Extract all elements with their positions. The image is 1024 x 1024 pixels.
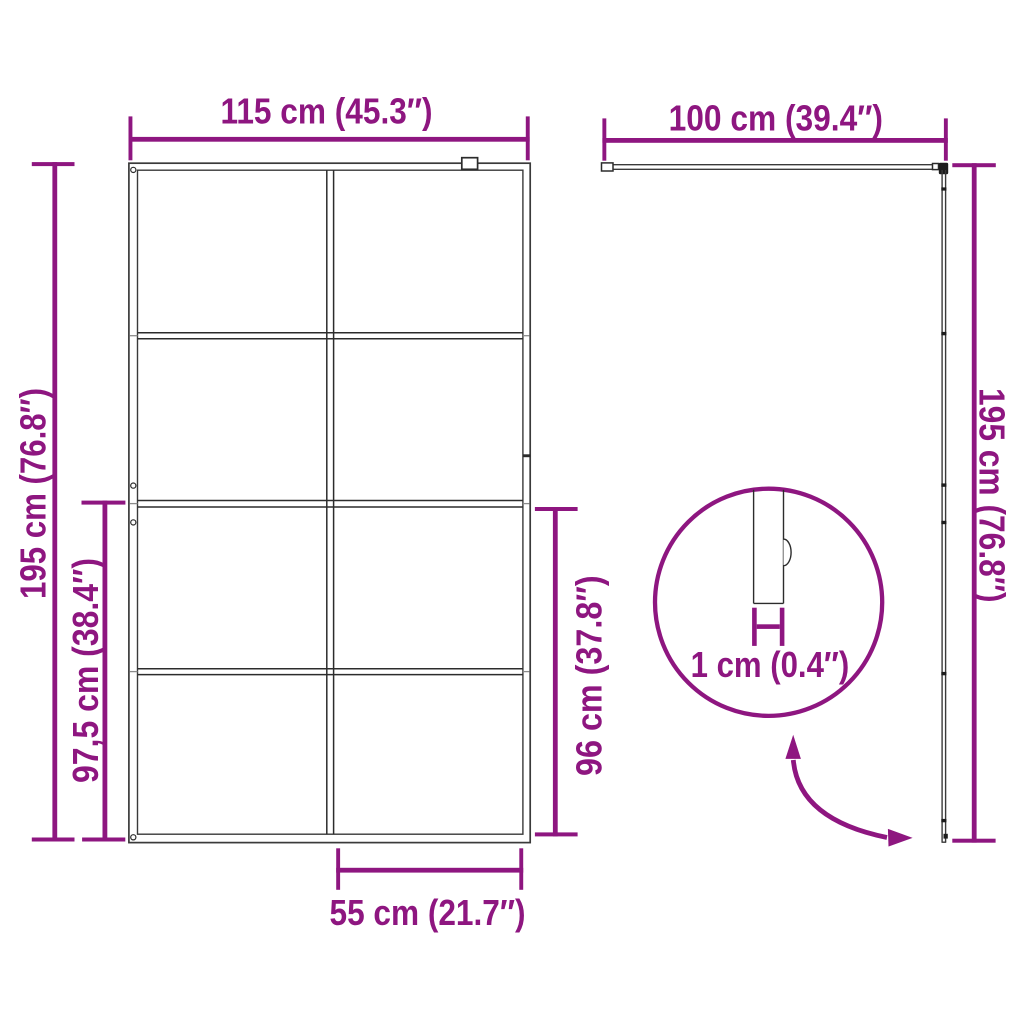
svg-text:115 cm (45.3″): 115 cm (45.3″): [221, 90, 433, 131]
svg-text:195 cm (76.8″): 195 cm (76.8″): [13, 388, 54, 599]
svg-text:1 cm (0.4″): 1 cm (0.4″): [691, 644, 850, 685]
svg-text:100 cm (39.4″): 100 cm (39.4″): [669, 98, 883, 139]
svg-text:195 cm (76.8″): 195 cm (76.8″): [972, 388, 1013, 603]
svg-text:96 cm (37.8″): 96 cm (37.8″): [569, 575, 610, 776]
svg-text:97,5 cm (38.4″): 97,5 cm (38.4″): [65, 558, 106, 783]
svg-text:55 cm (21.7″): 55 cm (21.7″): [330, 892, 526, 933]
